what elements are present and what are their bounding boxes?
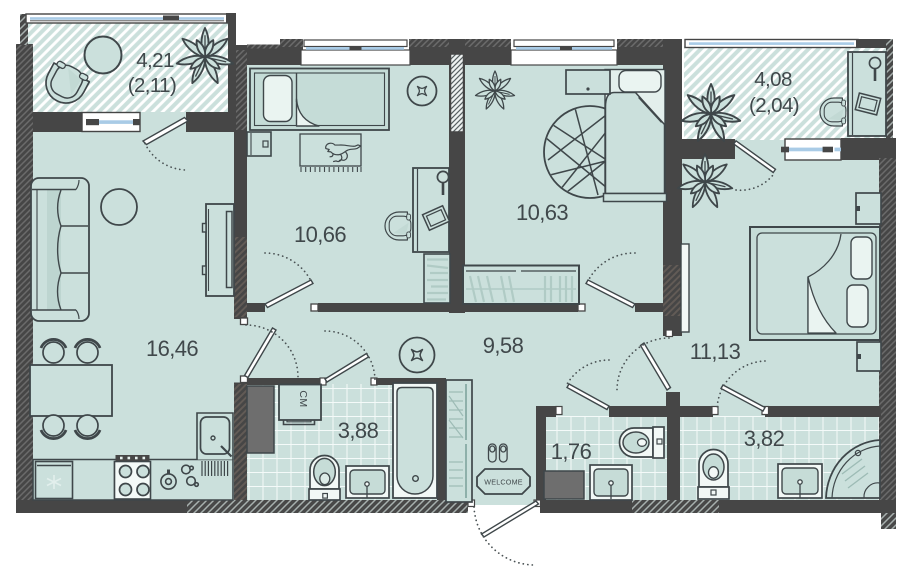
svg-text:4,08: 4,08 xyxy=(754,68,792,91)
svg-text:10,66: 10,66 xyxy=(294,222,346,247)
svg-text:CM: CM xyxy=(297,390,309,407)
svg-text:11,13: 11,13 xyxy=(690,339,741,364)
svg-text:9,58: 9,58 xyxy=(483,333,524,358)
svg-text:(2,11): (2,11) xyxy=(128,74,176,97)
svg-text:3,88: 3,88 xyxy=(338,418,379,443)
svg-text:4,21: 4,21 xyxy=(136,49,174,72)
svg-text:1,76: 1,76 xyxy=(551,439,592,464)
svg-text:10,63: 10,63 xyxy=(516,200,568,225)
svg-text:WELCOME: WELCOME xyxy=(484,478,523,487)
svg-text:(2,04): (2,04) xyxy=(749,94,799,117)
svg-text:3,82: 3,82 xyxy=(744,426,785,451)
svg-text:16,46: 16,46 xyxy=(146,336,198,361)
